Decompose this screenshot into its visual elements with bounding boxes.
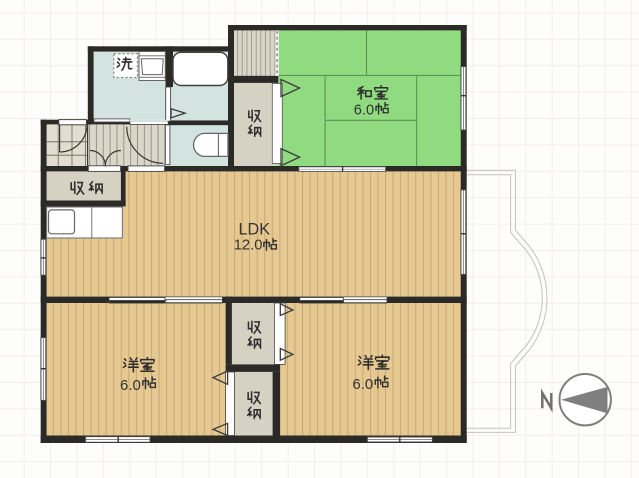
svg-text:LDK: LDK bbox=[239, 221, 271, 239]
svg-text:6.0: 6.0 bbox=[120, 377, 141, 394]
svg-text:6.0: 6.0 bbox=[352, 376, 373, 393]
svg-text:6.0: 6.0 bbox=[354, 102, 374, 118]
svg-text:12.0: 12.0 bbox=[234, 238, 263, 254]
